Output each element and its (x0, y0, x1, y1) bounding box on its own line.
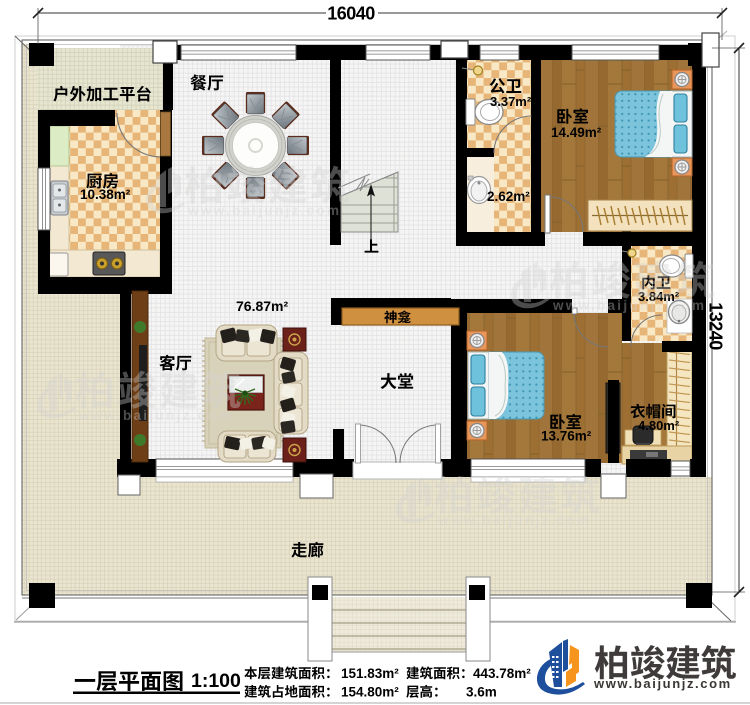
svg-text:10.38m²: 10.38m² (80, 187, 131, 202)
svg-text:1:100: 1:100 (191, 670, 241, 692)
svg-text:13.76m²: 13.76m² (541, 429, 592, 444)
svg-text:4.80m²: 4.80m² (638, 418, 680, 433)
svg-text:151.83m²: 151.83m² (341, 666, 399, 681)
svg-text:www.baijunjz.com: www.baijunjz.com (593, 676, 732, 691)
svg-text:www.baijunjz.com: www.baijunjz.com (437, 513, 591, 528)
svg-text:www.baijunjz.com: www.baijunjz.com (78, 408, 232, 423)
svg-text:13240: 13240 (706, 302, 726, 350)
svg-text:2.62m²: 2.62m² (487, 189, 530, 204)
svg-text:76.87m²: 76.87m² (236, 298, 288, 314)
svg-text:443.78m²: 443.78m² (473, 666, 531, 681)
svg-text:154.80m²: 154.80m² (341, 685, 399, 700)
svg-text:16040: 16040 (327, 4, 375, 24)
svg-text:3.6m: 3.6m (466, 685, 497, 700)
svg-text:www.baijunjz.com: www.baijunjz.com (552, 298, 706, 313)
svg-text:3.37m²: 3.37m² (490, 94, 532, 109)
svg-text:14.49m²: 14.49m² (551, 125, 602, 140)
svg-text:www.baijunjz.com: www.baijunjz.com (187, 203, 341, 218)
